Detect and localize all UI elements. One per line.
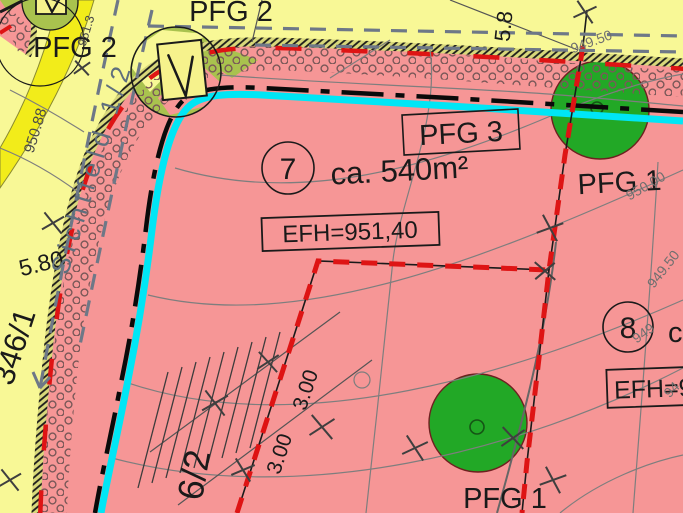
plot8-area-partial: ca.	[668, 317, 683, 349]
plot7-height: EFH=951,40	[282, 217, 418, 249]
parcel-label-6-2: 6/2	[169, 447, 218, 503]
zone-label-pfg2-top: PFG 2	[189, 0, 273, 28]
zone-label-pfg1-bottom: PFG 1	[463, 483, 547, 513]
plan-canvas: PFG 2 PFG 2 PFG 3 PFG 1 PFG 1 7 ca. 540m…	[0, 0, 683, 513]
plot7-area: ca. 540m²	[330, 149, 469, 191]
zone-label-pfg3: PFG 3	[418, 116, 503, 152]
zone-label-pfg2-left: PFG 2	[33, 32, 117, 64]
plot7-number: 7	[280, 153, 297, 186]
dim-road-width-top: 5.8	[490, 10, 518, 43]
development-plan-map: PFG 2 PFG 2 PFG 3 PFG 1 PFG 1 7 ca. 540m…	[0, 0, 683, 513]
